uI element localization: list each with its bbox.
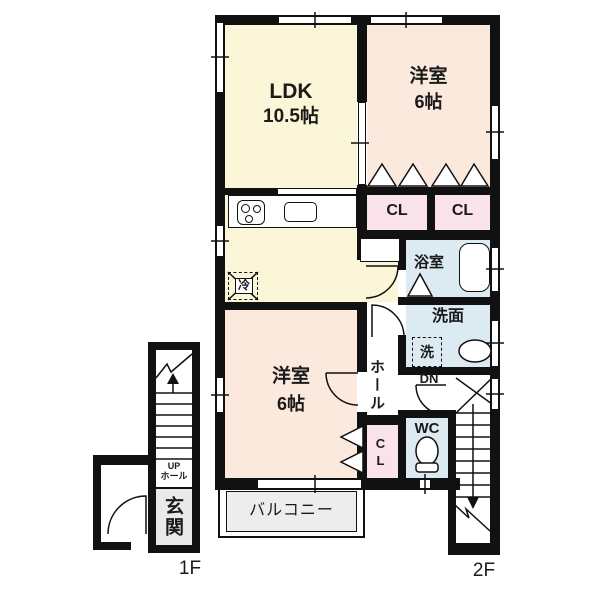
wall-1f-stairs-right [192, 342, 200, 553]
window [216, 225, 224, 257]
hall-label: ホール [369, 336, 384, 436]
wall-1f-stairs-bottom [148, 545, 200, 553]
room-ldk [225, 25, 357, 302]
wall-entrance-top [93, 455, 148, 465]
floorplan: LDK 10.5帖 洋室 6帖 洋室 6帖 CL CL 浴室 洗面 洗 冷 ホー… [0, 0, 600, 600]
wall-entrance-left [93, 455, 101, 550]
wall-ldk-bedroom-lower [215, 302, 357, 310]
wall-wc-top [398, 410, 456, 418]
bathtub-icon [459, 243, 490, 292]
wall-kitchen-stub [225, 188, 277, 195]
utility-box [360, 238, 400, 262]
stove-burner-icon [245, 215, 253, 223]
kitchen-sink-icon [284, 202, 317, 222]
stairs2f-down-arrowhead [467, 497, 479, 509]
stairs1f-break-line [156, 354, 192, 378]
bedroom-upper-size-label: 6帖 [367, 92, 490, 113]
closet-upper-right-label: CL [435, 202, 490, 220]
window [491, 247, 499, 292]
window [491, 105, 499, 160]
window [278, 16, 352, 24]
ldk-size-label: 10.5帖 [225, 106, 357, 128]
window [216, 22, 224, 93]
closet-lower-label: CL [374, 430, 387, 476]
door-arc-washroom [372, 305, 404, 337]
stove-burner-icon [253, 205, 261, 213]
stairs-up-hall-label: ホール [154, 471, 194, 481]
stairs2f-treads [456, 413, 492, 497]
stairs-up-label: UP [156, 461, 192, 471]
stairs-dn-label: DN [412, 372, 446, 387]
wall-stairs2f-bottom [448, 543, 500, 555]
balcony-label: バルコニー [226, 502, 357, 520]
wall-1f-stairs-left [148, 342, 156, 553]
stairs1f-up-arrowhead [167, 373, 179, 384]
refrigerator-label: 冷 [235, 278, 253, 294]
bedroom-upper-label: 洋室 [367, 66, 490, 88]
entrance-label: 玄関 [163, 490, 182, 544]
window [370, 16, 443, 24]
sliding-door [358, 102, 366, 185]
room-ldk-nook [357, 260, 398, 302]
stove-burner-icon [241, 204, 250, 213]
wall-bathroom-washroom [398, 297, 490, 305]
wall-between-closets [427, 195, 435, 230]
washing-machine-label: 洗 [412, 344, 442, 360]
entrance-door-opening [131, 543, 148, 549]
floor-label-2f: 2F [454, 560, 514, 582]
wall-stairs2f-left [448, 410, 456, 553]
ldk-label: LDK [225, 80, 357, 104]
floor-label-1f: 1F [160, 558, 220, 580]
stairs2f-winder-lines [456, 378, 492, 413]
washroom-label: 洗面 [420, 308, 476, 326]
window [491, 320, 499, 367]
closet-upper-left-label: CL [367, 202, 427, 220]
stairs2f-break-line [455, 505, 490, 531]
door-arc-entrance [108, 496, 146, 534]
wc-vent-window [419, 479, 431, 489]
bedroom-lower-label: 洋室 [225, 366, 357, 388]
wall-entrance-bottom [93, 542, 131, 550]
wall-hall-bedroom-upper-seg [357, 302, 367, 372]
wall-under-bedroom-upper [357, 187, 490, 195]
kitchen-counter-edge [277, 188, 357, 195]
stairs1f-treads [156, 393, 192, 448]
wall-ldk-bedroom-upper-a [357, 15, 367, 102]
bedroom-lower-size-label: 6帖 [225, 394, 357, 415]
window [216, 377, 224, 413]
wc-label: WC [406, 420, 448, 437]
balcony-window [257, 479, 362, 489]
bathroom-label: 浴室 [400, 254, 458, 271]
window [491, 378, 499, 410]
